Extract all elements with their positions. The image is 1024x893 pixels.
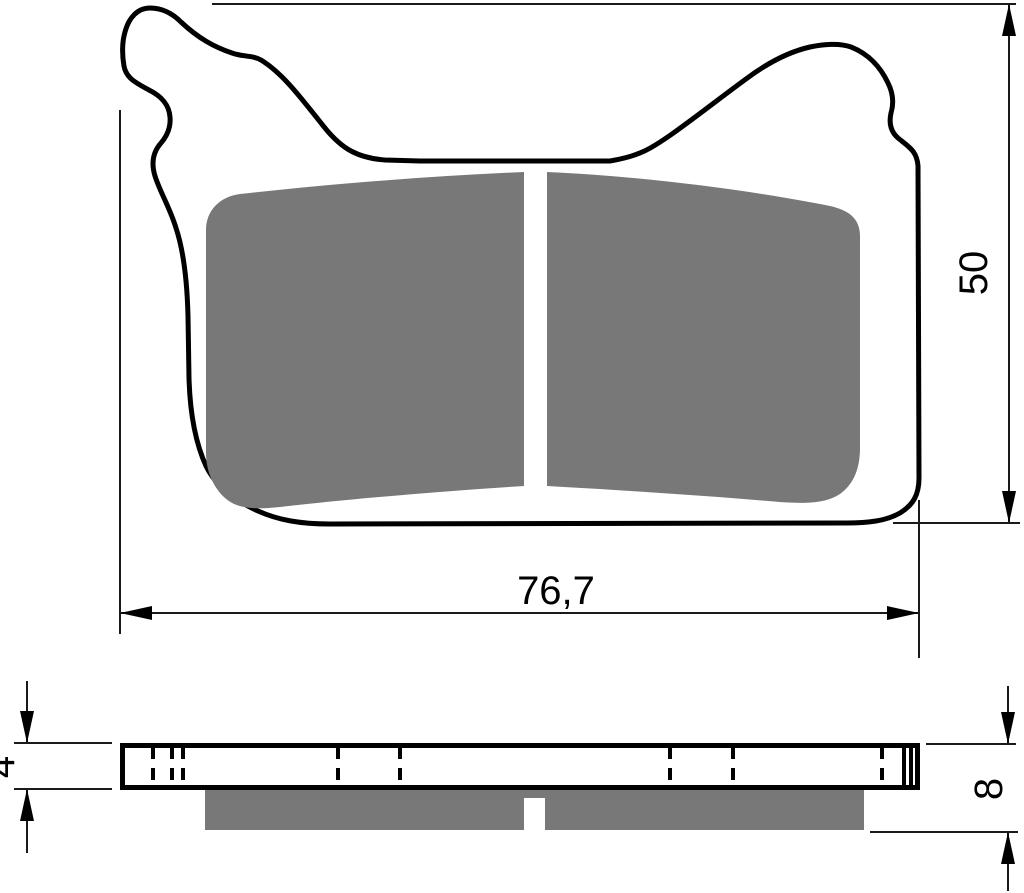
width-dimension-label: 76,7 (517, 569, 595, 613)
arrowhead-down (20, 711, 34, 743)
arrowhead-down (1001, 712, 1015, 744)
side-view-friction-material (205, 790, 864, 830)
top-view (123, 8, 919, 524)
brake-pad-technical-drawing: 76,7 50 4 (0, 0, 1024, 893)
total-thickness-label: 8 (967, 778, 1011, 800)
friction-pad-right (547, 172, 860, 503)
technical-drawing-page: 76,7 50 4 (0, 0, 1024, 893)
arrowhead-left (120, 606, 152, 620)
side-view-backing-plate (123, 746, 918, 788)
arrowhead-right (887, 606, 919, 620)
arrowhead-up (1002, 4, 1016, 36)
height-dimension-label: 50 (952, 251, 996, 296)
arrowhead-up (20, 789, 34, 821)
dimension-plate-thickness: 4 (0, 681, 112, 853)
side-view (123, 745, 918, 830)
plate-thickness-label: 4 (0, 756, 23, 778)
arrowhead-up (1001, 832, 1015, 864)
arrowhead-down (1002, 491, 1016, 523)
friction-pad-left (206, 172, 524, 508)
